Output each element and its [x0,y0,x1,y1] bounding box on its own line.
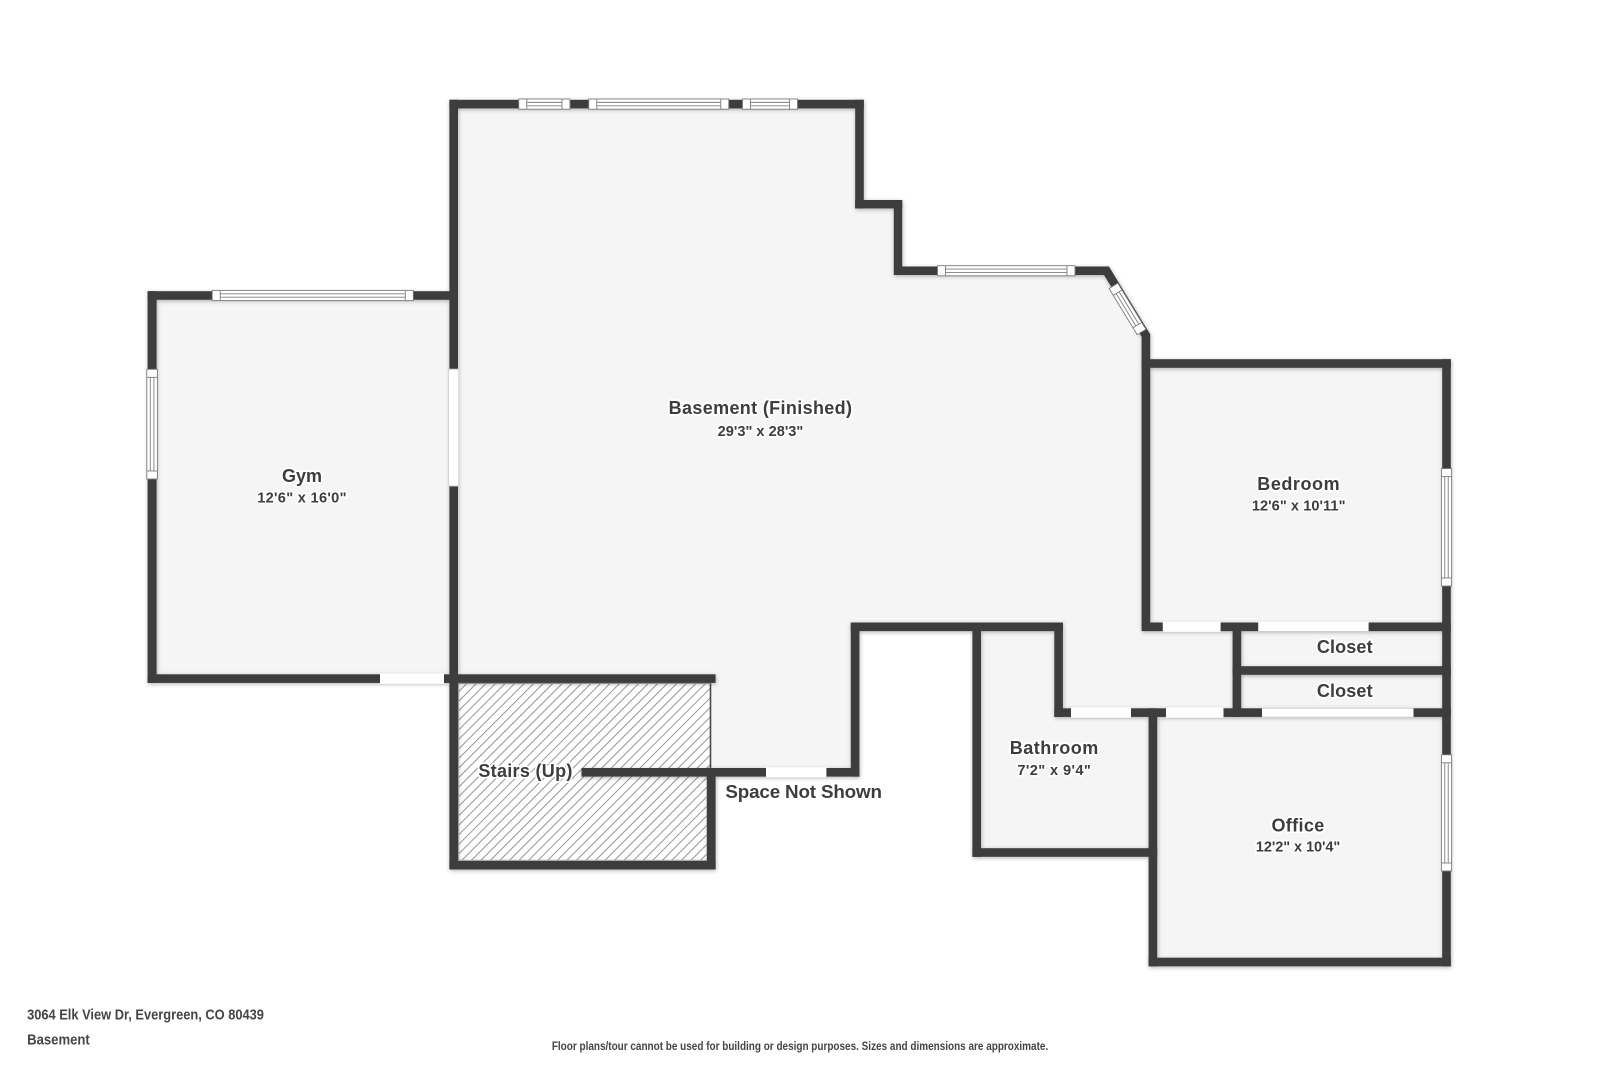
svg-text:Bathroom: Bathroom [1010,738,1099,758]
svg-text:12'2" x 10'4": 12'2" x 10'4" [1256,840,1340,856]
svg-text:12'6" x 10'11": 12'6" x 10'11" [1252,499,1346,515]
svg-text:3064 Elk View Dr, Evergreen, C: 3064 Elk View Dr, Evergreen, CO 80439 [27,1006,264,1023]
svg-text:Office: Office [1271,815,1324,835]
svg-text:Gym: Gym [282,466,322,486]
svg-text:Stairs (Up): Stairs (Up) [478,761,572,781]
svg-text:Closet: Closet [1317,681,1373,701]
svg-text:Space Not Shown: Space Not Shown [725,781,881,802]
svg-text:7'2" x 9'4": 7'2" x 9'4" [1017,763,1091,779]
svg-text:Basement (Finished): Basement (Finished) [669,398,853,418]
svg-text:Floor plans/tour cannot be use: Floor plans/tour cannot be used for buil… [552,1040,1048,1053]
svg-text:Closet: Closet [1317,637,1373,657]
svg-text:29'3" x 28'3": 29'3" x 28'3" [718,424,804,440]
svg-text:12'6" x 16'0": 12'6" x 16'0" [257,490,347,506]
svg-text:Basement: Basement [27,1032,90,1049]
svg-text:Bedroom: Bedroom [1257,474,1340,494]
